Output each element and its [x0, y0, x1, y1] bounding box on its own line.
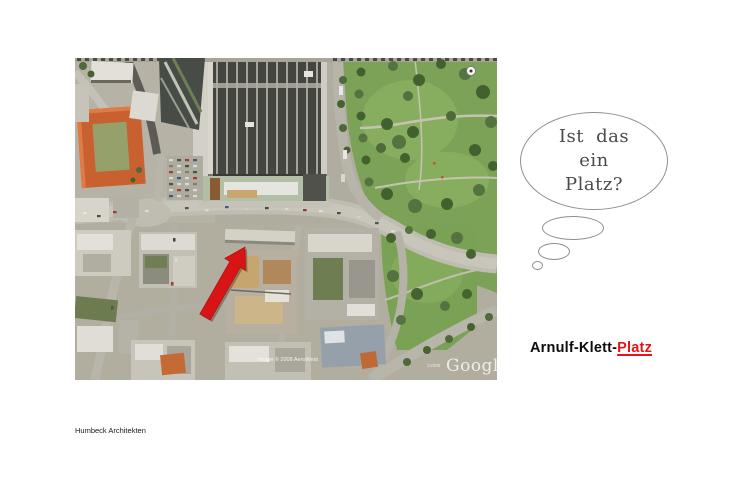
map-image-credit: Image © 2008 AeroWest	[258, 356, 318, 363]
thought-bubble-line-3: Platz?	[559, 173, 629, 197]
slide-title-prefix: Arnulf-Klett-	[530, 340, 617, 356]
aerial-map-svg: Image © 2008 AeroWest ©2008 Google	[75, 58, 497, 380]
thought-bubble-line-2: ein	[559, 149, 629, 173]
compass-icon	[467, 67, 476, 76]
parking-lot	[167, 156, 203, 200]
presentation-slide: Image © 2008 AeroWest ©2008 Google Ist d…	[0, 0, 745, 490]
map-top-edge	[75, 58, 497, 62]
train-station-building	[193, 58, 331, 208]
slide-title: Arnulf-Klett-Platz	[530, 340, 652, 356]
thought-bubble-line-1: Ist das	[559, 125, 629, 149]
aerial-map-image: Image © 2008 AeroWest ©2008 Google	[75, 58, 497, 380]
thought-bubble: Ist das ein Platz?	[520, 112, 668, 210]
thought-bubble-trail-small	[532, 261, 543, 270]
google-watermark: Google	[446, 356, 497, 376]
thought-bubble-text: Ist das ein Platz?	[559, 125, 629, 197]
map-watermark-copyright: ©2008	[427, 362, 441, 368]
thought-bubble-trail-large	[542, 216, 604, 240]
slide-title-highlight: Platz	[617, 340, 652, 356]
footer-credit: Humbeck Architekten	[75, 426, 146, 435]
thought-bubble-trail-medium	[538, 243, 570, 260]
